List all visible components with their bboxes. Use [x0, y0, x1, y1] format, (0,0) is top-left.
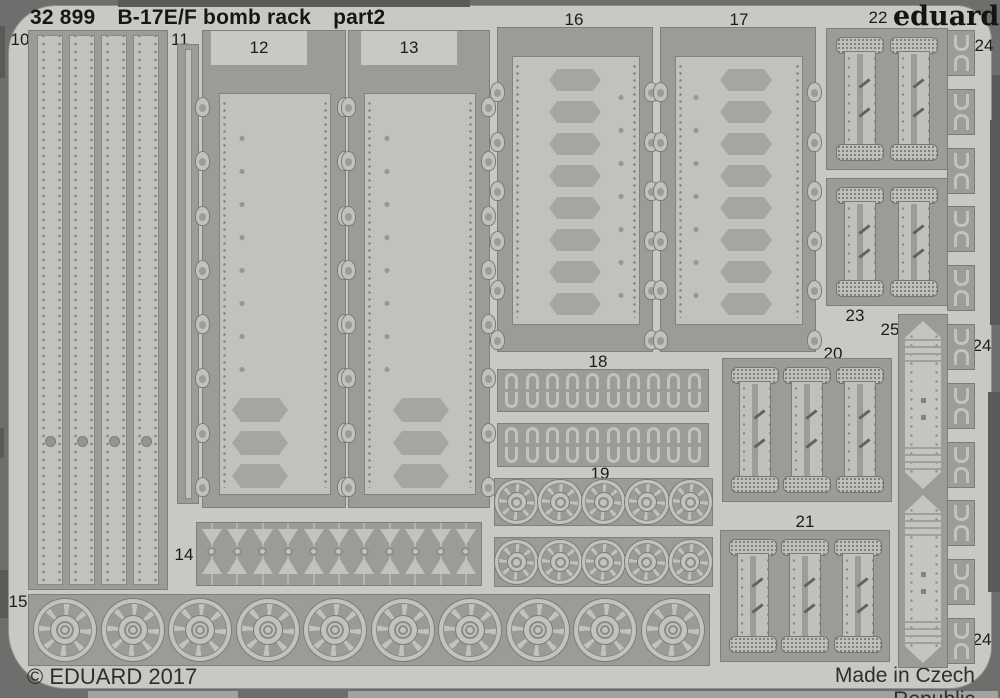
hex-pad	[549, 261, 601, 283]
loop-part	[607, 392, 620, 408]
brace-part	[455, 529, 476, 579]
pulley-part	[582, 540, 625, 584]
part-13-panel: 13	[348, 30, 490, 508]
hook-part	[807, 231, 822, 251]
hook-part	[341, 151, 356, 171]
part-14-label: 14	[170, 545, 198, 565]
brace-part	[328, 529, 349, 579]
plate-part	[512, 56, 640, 325]
hook-part	[653, 132, 668, 152]
rail-part	[37, 35, 63, 585]
made-in-text: Made in Czech Republic	[770, 664, 975, 698]
strap-part	[905, 321, 941, 489]
hole-row	[238, 114, 246, 374]
sheet-part: part2	[333, 6, 385, 29]
bracket-part	[947, 265, 975, 311]
hook-part	[481, 368, 496, 388]
hex-pad	[393, 464, 449, 488]
loop-part	[627, 447, 640, 463]
shackle-part	[893, 187, 935, 297]
part-22-panel	[826, 28, 948, 170]
hook-part	[807, 330, 822, 350]
part-10-panel	[28, 30, 168, 590]
loop-part	[667, 392, 680, 408]
loop-part	[566, 373, 579, 389]
photo-edge-bottom	[88, 691, 238, 698]
wheel-part	[237, 599, 299, 661]
bracket-part	[947, 324, 975, 370]
rail-part	[133, 35, 159, 585]
loop-part	[505, 392, 518, 408]
wheel-part	[642, 599, 704, 661]
loop-part	[627, 427, 640, 443]
bracket-part	[947, 148, 975, 194]
loop-part	[688, 447, 701, 463]
photo-edge-right	[988, 392, 1000, 592]
wheel-part	[102, 599, 164, 661]
loop-part	[688, 392, 701, 408]
bracket-part	[947, 30, 975, 76]
hook-part	[195, 368, 210, 388]
loop-part	[566, 427, 579, 443]
hook-part	[807, 132, 822, 152]
hook-part	[490, 82, 505, 102]
rivet-row	[367, 100, 372, 488]
hook-part	[341, 368, 356, 388]
loop-part	[566, 392, 579, 408]
hex-pad	[549, 293, 601, 315]
pulley-part	[669, 540, 712, 584]
hook-part	[195, 260, 210, 280]
loop-part	[647, 447, 660, 463]
bracket-part	[947, 383, 975, 429]
hex-pad	[549, 101, 601, 123]
part-19-strip	[494, 537, 713, 587]
loop-part	[526, 373, 539, 389]
wheel-part	[34, 599, 96, 661]
wheel-part	[439, 599, 501, 661]
hook-part	[341, 206, 356, 226]
rivet-row	[515, 63, 520, 318]
pulley-part	[538, 540, 581, 584]
wheel-part	[507, 599, 569, 661]
loop-part	[586, 373, 599, 389]
bracket-part	[947, 89, 975, 135]
rivet-row	[678, 63, 683, 318]
pulley-part	[625, 480, 668, 524]
loop-part	[526, 392, 539, 408]
hole-row	[692, 73, 700, 308]
hole-row	[617, 73, 625, 308]
hook-part	[653, 330, 668, 350]
part-22-label: 22	[856, 8, 900, 28]
hook-part	[195, 314, 210, 334]
copyright-text: © EDUARD 2017	[27, 664, 197, 690]
brace-part	[227, 529, 248, 579]
hex-pad	[232, 431, 288, 455]
loop-part	[505, 447, 518, 463]
hook-part	[807, 280, 822, 300]
hex-pad	[549, 229, 601, 251]
brace-part	[354, 529, 375, 579]
shackle-part	[839, 367, 881, 493]
brace-part	[201, 529, 222, 579]
loop-part	[566, 447, 579, 463]
hex-pad	[720, 133, 772, 155]
wheel-part	[304, 599, 366, 661]
loop-part	[505, 373, 518, 389]
hook-part	[341, 423, 356, 443]
plate-part	[364, 93, 476, 495]
loop-part	[586, 392, 599, 408]
loop-part	[688, 427, 701, 443]
loop-part	[505, 427, 518, 443]
hex-pad	[720, 261, 772, 283]
part-20-panel	[722, 358, 892, 502]
hook-part	[481, 423, 496, 443]
hook-part	[490, 330, 505, 350]
hole-row	[383, 114, 391, 374]
brace-part	[430, 529, 451, 579]
pulley-part	[538, 480, 581, 524]
hook-part	[807, 181, 822, 201]
loop-part	[647, 392, 660, 408]
hex-pad	[720, 197, 772, 219]
part-14-strip	[196, 522, 482, 586]
hex-pad	[549, 69, 601, 91]
hex-pad	[720, 101, 772, 123]
hex-pad	[720, 165, 772, 187]
part-19-strip	[494, 478, 713, 526]
loop-part	[526, 427, 539, 443]
photo-edge-right	[992, 75, 1000, 125]
hook-part	[807, 82, 822, 102]
hook-part	[341, 314, 356, 334]
loop-part	[607, 447, 620, 463]
shackle-part	[839, 187, 881, 297]
brace-part	[252, 529, 273, 579]
hook-part	[341, 477, 356, 497]
brace-part	[379, 529, 400, 579]
loop-part	[627, 392, 640, 408]
loop-part	[647, 427, 660, 443]
hook-part	[490, 181, 505, 201]
part-16-panel	[497, 27, 653, 352]
hook-part	[341, 260, 356, 280]
loop-part	[688, 373, 701, 389]
rivet-row	[795, 63, 800, 318]
hook-part	[653, 82, 668, 102]
loop-part	[546, 427, 559, 443]
brace-part	[303, 529, 324, 579]
bracket-part	[947, 206, 975, 252]
hook-part	[653, 280, 668, 300]
strap-part	[905, 495, 941, 663]
sheet-title: 32 899B-17E/F bomb rackpart2	[30, 6, 407, 30]
loop-part	[546, 373, 559, 389]
hex-pad	[549, 197, 601, 219]
shackle-part	[734, 367, 776, 493]
shackle-part	[784, 539, 826, 653]
hook-part	[195, 477, 210, 497]
shackle-part	[732, 539, 774, 653]
hook-part	[195, 423, 210, 443]
shackle-part	[786, 367, 828, 493]
wheel-part	[574, 599, 636, 661]
shackle-part	[837, 539, 879, 653]
shackle-part	[839, 37, 881, 161]
sheet-name: B-17E/F bomb rack	[117, 6, 311, 29]
pulley-part	[495, 540, 538, 584]
pulley-part	[582, 480, 625, 524]
hex-pad	[393, 398, 449, 422]
wheel-part	[372, 599, 434, 661]
pulley-part	[495, 480, 538, 524]
loop-part	[667, 447, 680, 463]
hex-pad	[720, 293, 772, 315]
plate-part	[675, 56, 803, 325]
rail-part	[101, 35, 127, 585]
loop-part	[546, 392, 559, 408]
hex-pad	[232, 464, 288, 488]
rail-part	[69, 35, 95, 585]
loop-part	[526, 447, 539, 463]
loop-part	[667, 373, 680, 389]
hook-part	[341, 97, 356, 117]
rail-part	[185, 49, 192, 499]
bracket-part	[947, 500, 975, 546]
part-23-panel	[826, 178, 948, 306]
hex-pad	[549, 133, 601, 155]
part-15-strip	[28, 594, 710, 666]
hook-part	[490, 132, 505, 152]
sheet-code: 32 899	[30, 6, 95, 29]
hook-part	[653, 181, 668, 201]
loop-part	[586, 427, 599, 443]
hex-pad	[393, 431, 449, 455]
part-17-panel	[660, 27, 816, 352]
part-13-label: 13	[361, 31, 457, 65]
bracket-part	[947, 559, 975, 605]
photo-edge-left	[0, 26, 5, 78]
loop-part	[627, 373, 640, 389]
part-21-label: 21	[783, 512, 827, 532]
loop-part	[586, 447, 599, 463]
bracket-part	[947, 442, 975, 488]
brace-part	[278, 529, 299, 579]
rivet-row	[323, 100, 328, 488]
hook-part	[195, 151, 210, 171]
rivet-row	[222, 100, 227, 488]
loop-part	[607, 373, 620, 389]
part-12-panel: 12	[202, 30, 346, 508]
rivet-row	[468, 100, 473, 488]
loop-part	[546, 447, 559, 463]
part-12-label: 12	[211, 31, 307, 65]
hex-pad	[720, 229, 772, 251]
pulley-part	[669, 480, 712, 524]
wheel-part	[169, 599, 231, 661]
part-24-column	[947, 30, 976, 664]
loop-part	[667, 427, 680, 443]
shackle-part	[893, 37, 935, 161]
plate-part	[219, 93, 331, 495]
hook-part	[195, 97, 210, 117]
part-21-panel	[720, 530, 890, 662]
hook-part	[653, 231, 668, 251]
photo-etch-sheet-photo: 32 899B-17E/F bomb rackpart2 eduard © ED…	[0, 0, 1000, 698]
rivet-row	[632, 63, 637, 318]
hex-pad	[232, 398, 288, 422]
hook-part	[490, 280, 505, 300]
part-18-strip	[497, 423, 709, 467]
photo-edge-left	[0, 428, 4, 458]
part-25-panel	[898, 314, 948, 668]
hex-pad	[720, 69, 772, 91]
part-18-strip	[497, 369, 709, 412]
hook-part	[195, 206, 210, 226]
hex-pad	[549, 165, 601, 187]
pulley-part	[625, 540, 668, 584]
loop-part	[647, 373, 660, 389]
brace-part	[405, 529, 426, 579]
bracket-part	[947, 618, 975, 664]
photo-edge-right	[990, 120, 1000, 325]
loop-part	[607, 427, 620, 443]
hook-part	[490, 231, 505, 251]
